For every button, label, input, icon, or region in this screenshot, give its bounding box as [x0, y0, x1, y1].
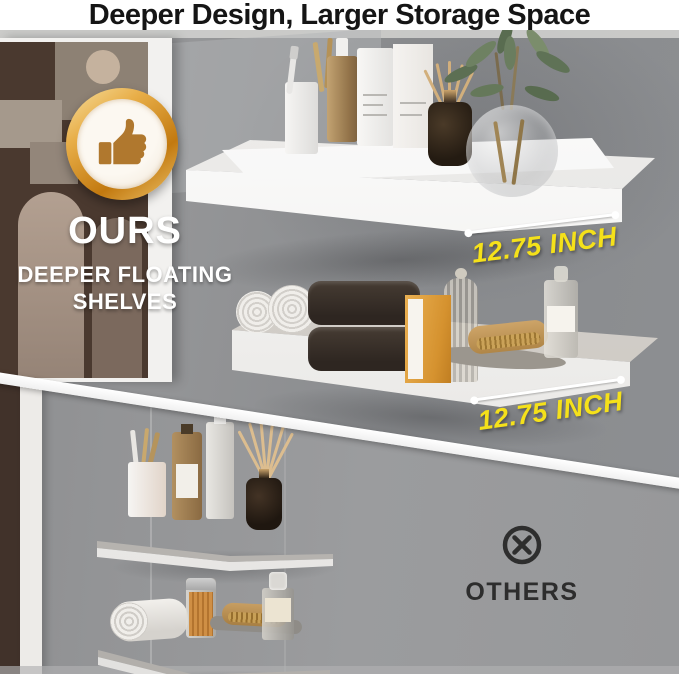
ours-subtitle-line1: DEEPER FLOATING — [0, 261, 250, 288]
glass-bottle — [262, 588, 294, 640]
white-bottle — [357, 48, 394, 146]
soap-label — [408, 299, 423, 379]
ours-subtitle: DEEPER FLOATING SHELVES — [0, 261, 250, 315]
photo-region: 12.75 INCH 12.75 I — [0, 30, 679, 674]
clear-bottle — [206, 422, 234, 519]
thumbs-up-icon — [93, 115, 151, 173]
glass-bottle — [544, 280, 578, 358]
utensil-cup — [128, 462, 166, 517]
page-title: Deeper Design, Larger Storage Space — [0, 0, 679, 32]
swab-jar — [186, 578, 216, 638]
branch — [493, 121, 507, 183]
ours-label: OURS — [0, 210, 250, 253]
ours-subtitle-line2: SHELVES — [0, 288, 250, 315]
soap-box — [405, 295, 451, 383]
label-line — [400, 114, 422, 116]
bottle-label — [176, 464, 198, 498]
reed-diffuser-bottle — [246, 478, 282, 530]
art-shape — [0, 100, 62, 148]
art-frame-edge — [20, 370, 42, 674]
label-line — [363, 114, 387, 116]
art-edge — [0, 370, 20, 674]
folded-towel — [308, 327, 420, 371]
label-line — [363, 94, 387, 96]
pump-top — [336, 38, 348, 58]
rolled-towel — [111, 597, 190, 642]
badge-inner — [77, 99, 167, 189]
branch — [511, 119, 524, 185]
others-label: OTHERS — [436, 578, 608, 607]
product-infographic: Deeper Design, Larger Storage Space — [0, 0, 679, 674]
header-band: Deeper Design, Larger Storage Space — [0, 0, 679, 30]
glass-vase — [466, 105, 558, 197]
floor-strip — [0, 666, 679, 674]
folded-towels — [308, 281, 420, 371]
label-line — [400, 102, 426, 104]
bottle-label — [547, 306, 575, 332]
white-box — [393, 44, 433, 148]
amber-bottle — [327, 56, 358, 142]
label-line — [363, 104, 383, 106]
amber-bottle — [172, 432, 202, 520]
bottle-label — [265, 598, 291, 622]
folded-towel — [308, 281, 420, 325]
art-shape — [86, 50, 120, 84]
plant-leaf — [504, 36, 516, 70]
x-circle-icon — [501, 524, 543, 566]
award-badge — [66, 88, 178, 200]
